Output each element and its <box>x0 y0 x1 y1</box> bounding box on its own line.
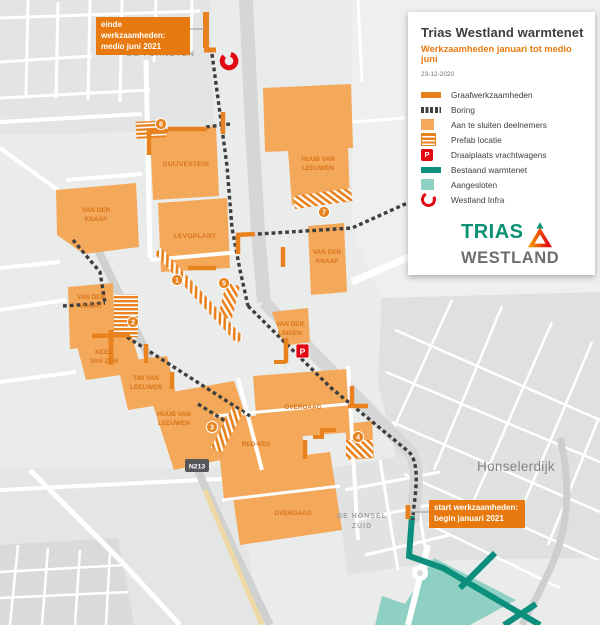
callout-einde-werkzaamheden: einde werkzaamheden: medio juni 2021 <box>96 17 190 55</box>
panel-title: Trias Westland warmtenet <box>421 25 587 40</box>
bestaand-swatch <box>421 167 441 173</box>
graafwerkzaamheden-swatch <box>421 92 441 98</box>
callout-einde-line2: medio juni 2021 <box>101 42 185 53</box>
label-vdlinden-2: LINDEN <box>278 330 302 337</box>
label-vdknaap-oost-2: KNAAP <box>316 258 339 265</box>
label-kees-1: KEES <box>95 349 113 356</box>
legend-row-bestaand: Bestaand warmtenet <box>421 162 587 177</box>
draaiplaats-swatch: P <box>421 149 433 161</box>
legend-row-graafwerkzaamheden: Graafwerkzaamheden <box>421 87 587 102</box>
badge-7: 7 <box>318 206 329 217</box>
legend-list: Graafwerkzaamheden Boring Aan te sluiten… <box>421 87 587 207</box>
legend-panel: Trias Westland warmtenet Werkzaamheden j… <box>408 12 595 275</box>
svg-text:2: 2 <box>131 318 135 327</box>
label-vdknaap-west-1: VAN DER <box>82 207 111 214</box>
draaiplaats-p-label: P <box>300 347 306 357</box>
svg-text:1: 1 <box>175 276 179 285</box>
aangesloten-swatch <box>421 179 434 190</box>
label-de-honsel-1: DE HONSEL <box>337 513 387 520</box>
label-vdknaap-west-2: KNAAP <box>85 216 108 223</box>
label-tim-1: TIM VAN <box>133 375 159 382</box>
badge-2: 2 <box>127 316 138 327</box>
svg-text:4: 4 <box>356 433 360 442</box>
callout-start-line2: begin januari 2021 <box>434 514 520 525</box>
label-huub-zuid-1: HUUB VAN <box>157 411 191 418</box>
n213-road-badge: N213 <box>185 459 209 472</box>
svg-text:7: 7 <box>322 208 326 217</box>
svg-text:3: 3 <box>210 423 214 432</box>
label-vdknaap-oost-1: VAN DER <box>313 249 342 256</box>
panel-date: 23-12-2020 <box>421 71 587 78</box>
label-de-honsel-2: ZUID <box>352 523 372 530</box>
label-vdvoort-2: VOORT <box>80 303 103 310</box>
legend-row-aangesloten: Aangesloten <box>421 177 587 192</box>
badge-1: 1 <box>171 274 182 285</box>
n213-label: N213 <box>189 464 205 471</box>
logo-trias-text: TRIAS <box>461 222 524 242</box>
trias-westland-logo: TRIAS WESTLAND <box>461 222 559 267</box>
prefab-swatch <box>421 133 436 146</box>
label-tim-2: LEEUWEN <box>130 384 162 391</box>
label-huub-zuid-2: LEEUWEN <box>158 420 190 427</box>
trias-triangle-icon <box>528 222 552 248</box>
legend-row-draaiplaats: P Draaiplaats vrachtwagens <box>421 147 587 162</box>
label-honselerdijk: Honselerdijk <box>477 459 555 474</box>
map-screenshot: P N213 1 2 3 4 5 6 7 DUIJVESTEIN LEVOPLA… <box>0 0 600 625</box>
label-levoplant: LEVOPLANT <box>174 233 216 240</box>
logo-westland-text: WESTLAND <box>461 250 559 267</box>
label-vdlinden-1: VAN DER <box>276 321 305 328</box>
boring-swatch <box>421 107 441 113</box>
label-duijvestein: DUIJVESTEIN <box>163 161 209 168</box>
label-huub-noord-1: HUUB VAN <box>301 156 335 163</box>
callout-start-line1: start werkzaamheden: <box>434 503 520 514</box>
westland-infra-swatch <box>419 190 438 209</box>
deelnemers-swatch <box>421 119 434 130</box>
badge-4: 4 <box>352 431 363 442</box>
svg-text:6: 6 <box>159 120 163 129</box>
label-overgaag-noord: OVERGAAG <box>284 404 321 411</box>
callout-einde-line1: einde werkzaamheden: <box>101 20 185 42</box>
svg-text:5: 5 <box>222 279 226 288</box>
label-vdvoort-1: VAN DER <box>77 294 106 301</box>
panel-subtitle: Werkzaamheden januari tot medio juni <box>421 44 587 64</box>
label-overgaag-zuid: OVERGAAG <box>274 510 311 517</box>
legend-row-prefab: Prefab locatie <box>421 132 587 147</box>
draaiplaats-marker: P <box>296 344 309 358</box>
callout-start-werkzaamheden: start werkzaamheden: begin januari 2021 <box>429 500 525 528</box>
parcel-huub-noord-a <box>263 84 353 152</box>
label-red-kes: RED-KES <box>242 441 271 448</box>
legend-row-boring: Boring <box>421 102 587 117</box>
badge-3: 3 <box>206 421 217 432</box>
badge-6: 6 <box>155 118 166 129</box>
label-huub-noord-2: LEEUWEN <box>302 165 334 172</box>
badge-5: 5 <box>218 277 229 288</box>
legend-row-deelnemers: Aan te sluiten deelnemers <box>421 117 587 132</box>
label-kees-2: VAN ZON <box>90 358 119 365</box>
legend-row-westland-infra: Westland Infra <box>421 192 587 207</box>
